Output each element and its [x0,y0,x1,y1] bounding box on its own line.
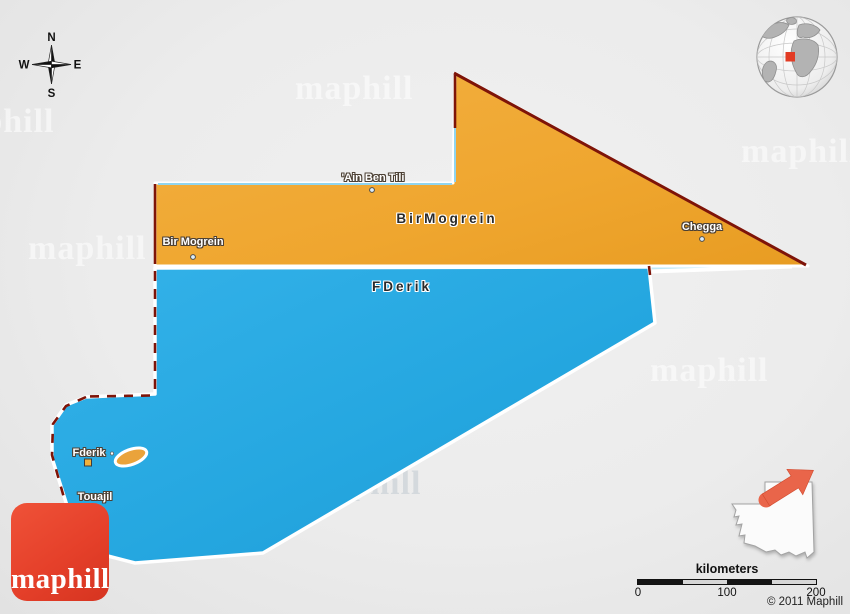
compass-rose-icon: N E S W [10,24,94,104]
globe-locator-icon [752,12,842,102]
scale-unit-label: kilometers [637,562,817,576]
town-dot-small [110,452,113,455]
region-label-birmogrein: BirMogrein [396,211,497,226]
town-label-touajil: Touajil [78,491,113,503]
compass-e-label: E [74,60,82,72]
scale-bar-segments [637,579,817,585]
region-birmogrein [155,73,808,266]
copyright-notice: © 2011 Maphill [767,596,843,608]
compass-w-label: W [19,60,30,72]
town-dot-chegga [700,237,705,242]
globe-region-marker [786,52,796,62]
compass-s-label: S [48,88,56,100]
border-tick [649,266,650,275]
maphill-logo-text: maphill [11,563,109,596]
country-locator-inset [708,446,850,571]
maphill-logo[interactable]: maphill [11,503,109,601]
region-fderik [52,267,655,563]
town-label-ain-ben-tili: 'Ain Ben Tili [342,172,405,184]
region-label-fderik: FDerik [372,279,432,294]
town-dot-bir-mogrein [191,255,196,260]
scale-tick-0: 0 [635,587,641,599]
map-canvas: maphill maphill maphill maphill maphill … [0,0,850,614]
town-label-fderik: Fderik [72,447,105,459]
town-label-bir-mogrein: Bir Mogrein [162,236,223,248]
town-square-fderik [85,459,92,466]
town-label-chegga: Chegga [682,221,722,233]
town-dot-ain-ben-tili [370,188,375,193]
compass-n-label: N [47,32,55,44]
scale-tick-100: 100 [717,587,736,599]
